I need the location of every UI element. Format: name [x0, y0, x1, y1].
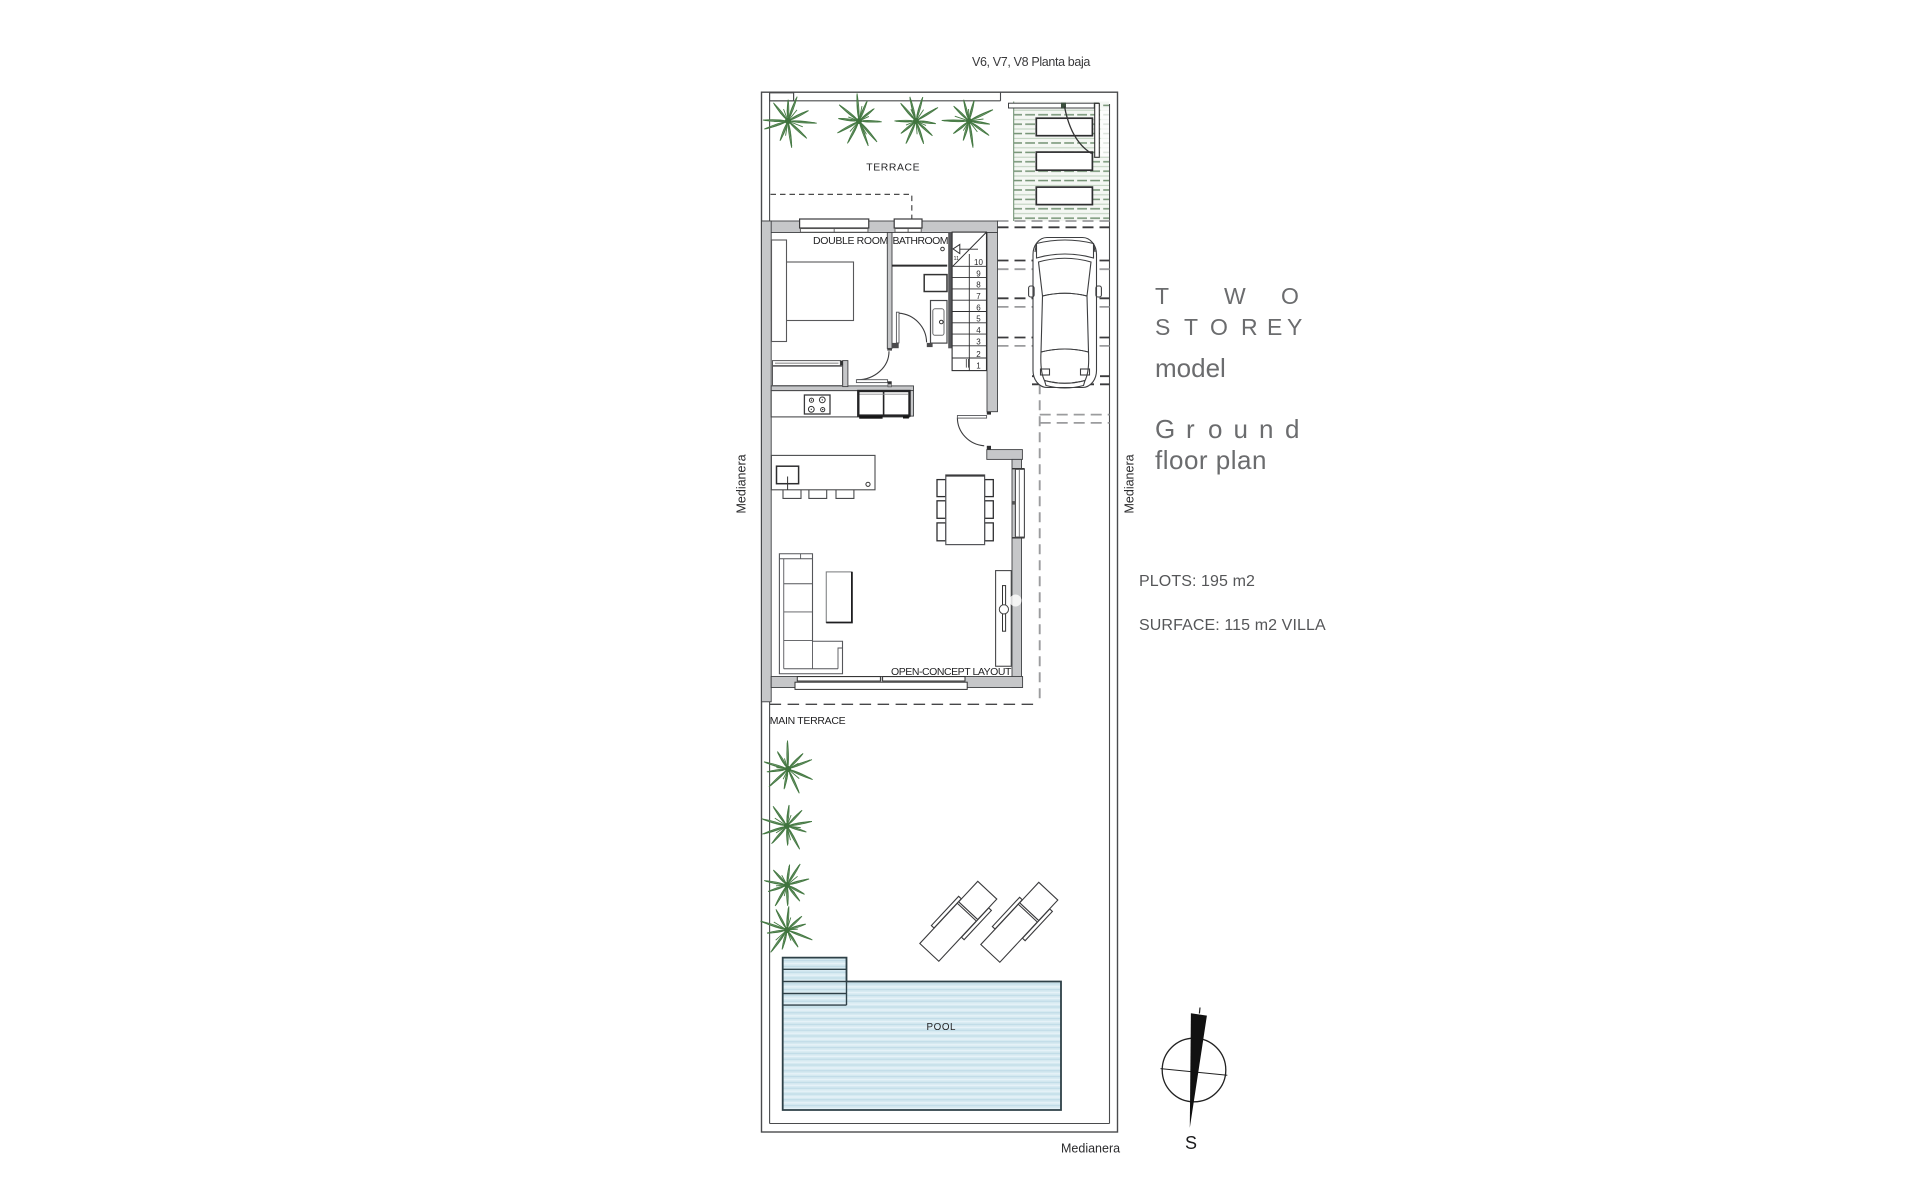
svg-text:S: S — [1185, 1133, 1197, 1153]
svg-text:model: model — [1155, 353, 1226, 383]
svg-text:11: 11 — [954, 256, 960, 262]
svg-text:OPEN-CONCEPT LAYOUT: OPEN-CONCEPT LAYOUT — [891, 666, 1012, 678]
svg-text:SURFACE: 115 m2 VILLA: SURFACE: 115 m2 VILLA — [1139, 617, 1326, 634]
svg-text:PLOTS: 195 m2: PLOTS: 195 m2 — [1139, 573, 1255, 590]
svg-text:Medianera: Medianera — [1123, 454, 1137, 513]
svg-text:5: 5 — [976, 315, 981, 324]
svg-text:Medianera: Medianera — [735, 454, 749, 513]
svg-text:9: 9 — [976, 269, 981, 278]
svg-text:6: 6 — [976, 303, 981, 312]
svg-text:POOL: POOL — [926, 1022, 956, 1033]
svg-text:7: 7 — [976, 292, 981, 301]
svg-text:4: 4 — [976, 326, 981, 335]
svg-text:10: 10 — [974, 258, 983, 267]
svg-text:3: 3 — [976, 338, 981, 347]
svg-text:BATHROOM: BATHROOM — [892, 235, 948, 247]
svg-text:DOUBLE ROOM: DOUBLE ROOM — [813, 235, 888, 247]
svg-text:2: 2 — [976, 350, 981, 359]
svg-text:TERRACE: TERRACE — [866, 162, 920, 173]
svg-text:MAIN TERRACE: MAIN TERRACE — [770, 715, 846, 727]
svg-text:V6, V7, V8 Planta baja: V6, V7, V8 Planta baja — [972, 55, 1090, 69]
svg-text:Medianera: Medianera — [1061, 1142, 1120, 1156]
svg-text:8: 8 — [976, 281, 981, 290]
svg-text:1: 1 — [976, 362, 981, 371]
svg-text:floor plan: floor plan — [1155, 445, 1267, 475]
